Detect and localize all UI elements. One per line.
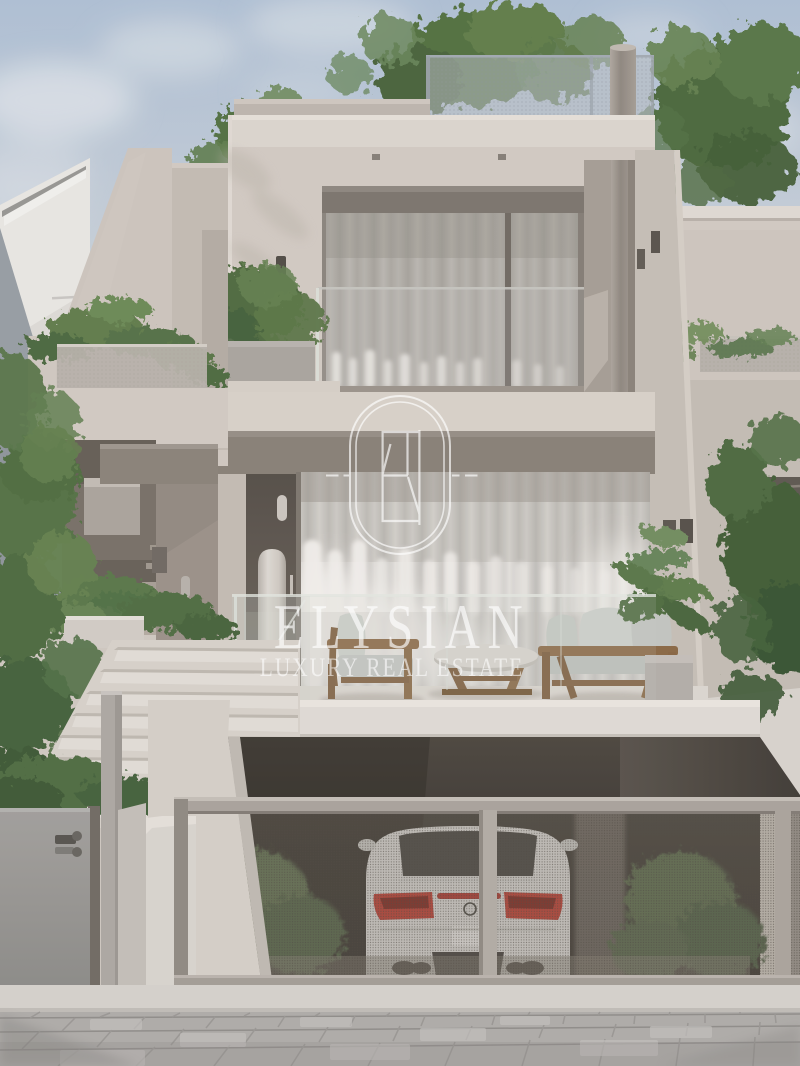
svg-text:ELYSIAN: ELYSIAN (274, 592, 530, 663)
svg-text:LUXURY REAL ESTATE: LUXURY REAL ESTATE (260, 654, 524, 682)
